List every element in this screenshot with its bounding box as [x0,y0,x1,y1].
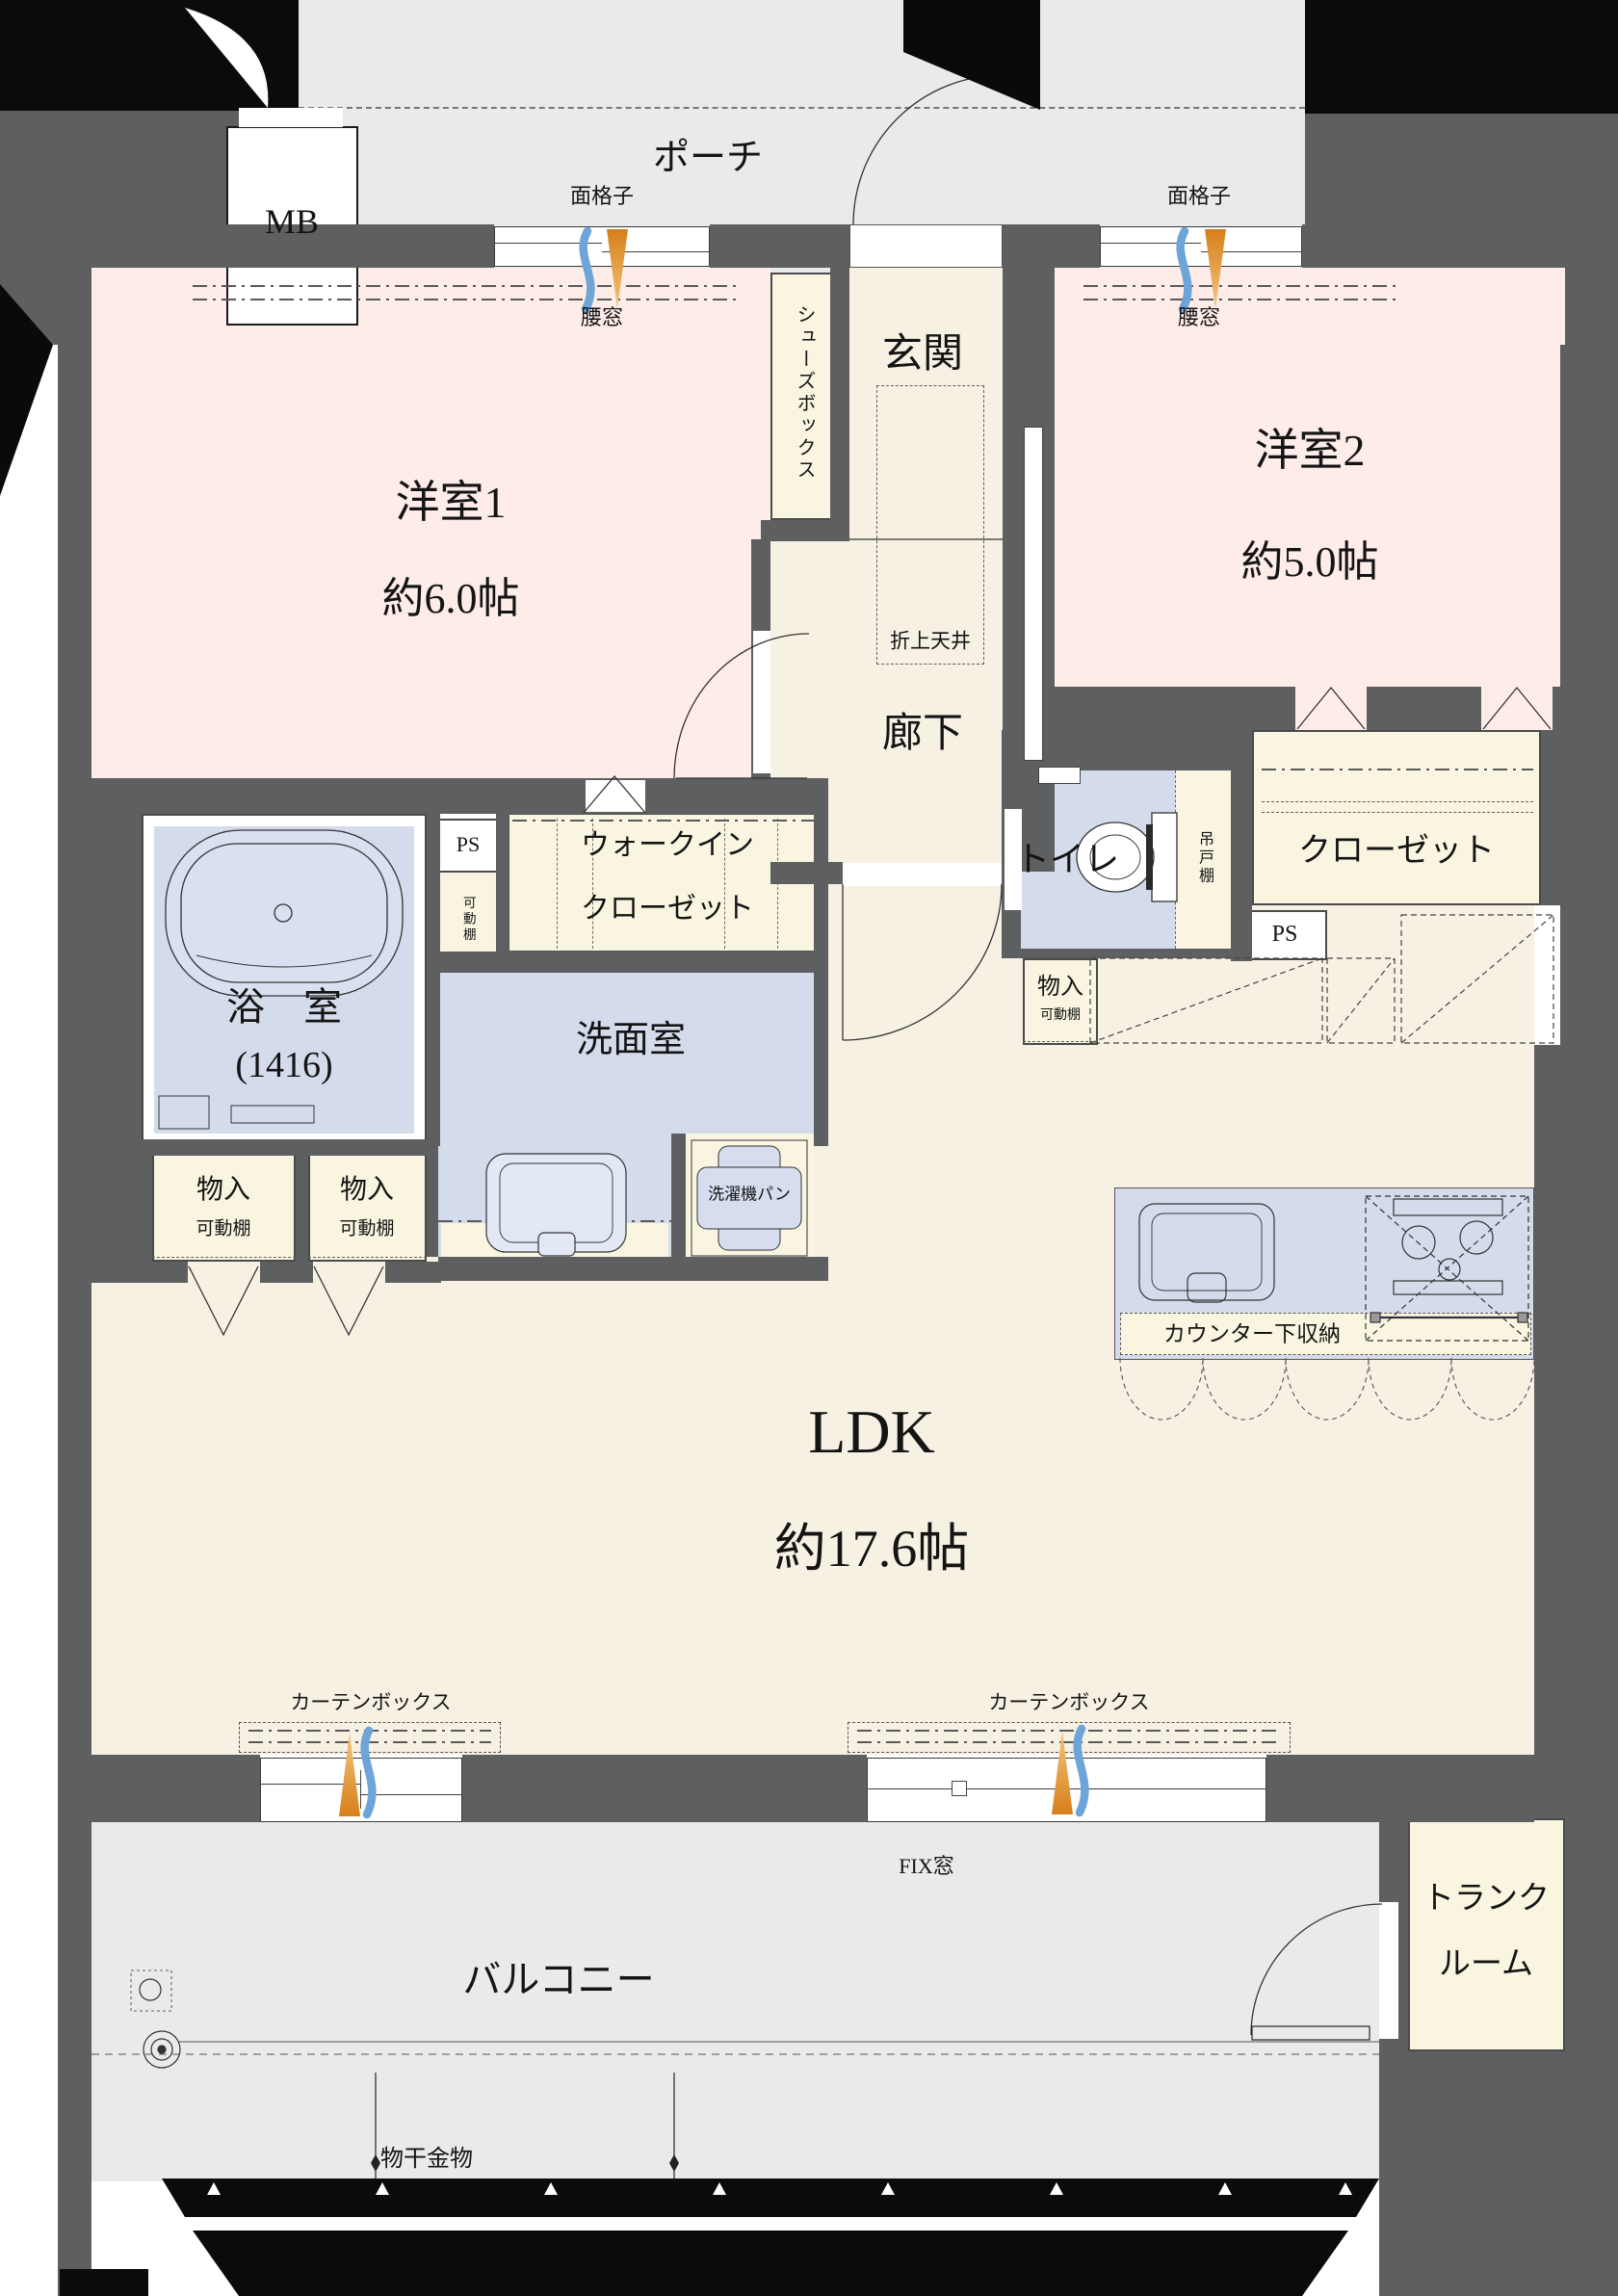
wall-segment [427,1146,438,1257]
wall-segment [1534,1755,1618,1779]
window-rail [1100,243,1201,244]
wic-shelf-line [512,820,822,822]
trunk-room [1408,1818,1565,2051]
railing-shadow [193,2231,1348,2296]
wall-segment [91,1755,260,1822]
wall-segment [1302,224,1565,268]
washroom-label: 洗面室 [576,1022,686,1058]
wall-segment [1003,224,1100,268]
wall-segment [142,1139,427,1156]
curtain-box-line [857,1730,1281,1732]
storage-box-2-line [308,1257,427,1258]
wall-segment [427,814,440,1146]
curtain-box-line [857,1741,1281,1743]
closet-shelf-line [1262,801,1533,802]
window-rail [1201,251,1302,252]
storage-box-2 [308,1154,427,1262]
ldk-size: 約17.6帖 [774,1523,970,1575]
ceiling-line [1083,299,1401,300]
wall-segment [496,814,509,953]
room2-label: 洋室2 [1255,429,1366,473]
corridor-label: 廊下 [882,714,963,754]
ps-label: PS [457,834,480,855]
trunk-room-label-line2: ルーム [1439,1949,1533,1981]
curtain-box-label: カーテンボックス [988,1693,1149,1713]
closet-door-opening [1481,687,1553,730]
wall-segment [710,224,849,268]
railing-mark [207,2182,221,2195]
waist-window-label: 腰窓 [1178,307,1220,328]
wic-door-opening [586,780,645,812]
boundary-dashed-line [299,107,1305,109]
bath-size: (1416) [235,1047,332,1083]
wall-segment [830,268,849,539]
shoes-box-label: シューズボックス [795,304,814,482]
railing-mark [544,2182,558,2195]
movable-shelf-label: 可動棚 [339,1220,394,1239]
laundry-hardware-label: 物干金物 [380,2148,473,2171]
balcony-label: バルコニー [462,1961,654,1999]
window-rail [260,1784,361,1785]
hanging-cupboard-label: 吊戸棚 [1196,831,1212,886]
grille-label: 面格子 [1167,186,1231,207]
curtain-box-right [848,1722,1291,1753]
window-center-tick [360,1770,361,1809]
bath-floor [154,826,414,1134]
ldk-door-opening [843,863,1002,886]
wall-segment [671,1134,686,1257]
trunk-room-label-line1: トランク [1422,1884,1550,1916]
balcony-railing [162,2179,1379,2217]
railing-mark [376,2182,389,2195]
wall-segment [462,1755,867,1822]
grille-label: 面格子 [570,186,634,207]
fix-window-label: FIX窓 [899,1856,953,1877]
window-rail [602,251,710,252]
ldk-window [260,1758,462,1822]
curtain-box-line [248,1741,491,1743]
storage-box-1 [152,1154,296,1262]
room1-size: 約6.0帖 [382,578,520,620]
window-rail [494,243,602,244]
room2-waist-window [1100,226,1302,267]
ps-label: PS [1272,923,1298,946]
movable-shelf-label: 可動棚 [196,1220,250,1239]
window-rail [361,1794,462,1795]
wall-segment [91,1262,188,1283]
wall-segment [769,778,828,814]
meter-box-notch [239,108,343,127]
railing-mark [881,2182,895,2195]
room1-door-opening [753,631,770,773]
movable-shelf-label: 可動棚 [461,896,475,944]
room2-sliding-door [1024,427,1043,761]
storage-label: 物入 [196,1177,250,1204]
washroom-counter-line [438,1220,671,1222]
corner-block-topright [1305,0,1618,114]
porch-label: ポーチ [653,140,763,176]
storage-box-3 [1023,958,1098,1045]
balcony-floor [91,1822,1379,2181]
room1-label: 洋室1 [396,481,507,525]
wall-segment [770,862,843,884]
storage-box-3-line [1023,1041,1098,1042]
corner-block-topleft [0,0,299,111]
storage-label: 物入 [340,1177,394,1204]
coffered-ceiling-outline [876,385,984,665]
ceiling-line [193,299,742,300]
ldk-label: LDK [808,1401,935,1463]
entrance-door-opening [849,224,1003,268]
wall-segment [260,1262,313,1283]
fix-window [867,1758,1266,1822]
closet-shelf-line [1262,812,1533,813]
closet-label: クローゼット [1298,835,1495,868]
wall-segment [1002,949,1242,958]
wall-segment [1534,1045,1618,1755]
wall-segment [761,520,849,541]
wall-segment [1560,345,1618,1045]
wall-segment [91,814,142,1141]
wic-label-line2: クローゼット [581,895,754,924]
curtain-box-label: カーテンボックス [290,1693,451,1713]
meter-box-label: MB [265,204,319,239]
ceiling-line [1083,285,1401,287]
trunk-door-opening [1379,1902,1398,2039]
waist-window-label: 腰窓 [581,307,623,328]
railing-mark [1339,2182,1352,2195]
railing-mark [1050,2182,1063,2195]
coffered-ceiling-label: 折上天井 [890,632,971,652]
railing-mark [1218,2182,1232,2195]
storage-label: 物入 [1037,976,1083,999]
ceiling-line [193,285,742,287]
laundry-pan-label: 洗濯機パン [708,1187,791,1203]
wall-segment [1231,730,1252,961]
wall-segment [385,1262,441,1283]
closet [1252,730,1541,905]
counter-storage-label: カウンター下収納 [1163,1323,1341,1345]
floor-plan: ポーチ MB 面格子 腰窓 面格子 腰窓 洋室1 約6.0帖 洋室2 約5.0帖… [0,0,1618,2296]
wall-segment [1266,1755,1534,1822]
entrance-label: 玄関 [882,334,963,375]
window-rail [867,1788,1266,1789]
wall-segment [1367,687,1481,730]
washroom-counter [441,1223,668,1257]
wall-segment [296,1154,308,1262]
wall-segment [91,778,770,814]
toilet-paper-holder [1038,767,1081,784]
railing-mark [713,2182,726,2195]
closet-pipe-line [1262,769,1533,770]
wall-segment [1055,687,1295,730]
room2-floor [1055,268,1565,687]
storage-box-1-line [152,1257,296,1258]
wall-segment [438,1257,828,1281]
room1-waist-window [494,226,710,267]
wic-pipe-line [557,819,558,949]
toilet-label: トイレ [1015,842,1119,876]
wall-segment [91,1141,152,1262]
room2-size: 約5.0帖 [1241,541,1379,584]
curtain-box-left [239,1722,501,1753]
bath-label: 浴 室 [226,988,342,1027]
wall-segment [58,345,91,2296]
wall-segment [427,952,826,973]
closet-door-opening [1295,687,1367,730]
movable-shelf-label: 可動棚 [1040,1009,1081,1023]
wic-label-line1: ウォークイン [581,831,754,860]
curtain-box-line [248,1730,491,1732]
fix-window-handle [952,1781,967,1796]
